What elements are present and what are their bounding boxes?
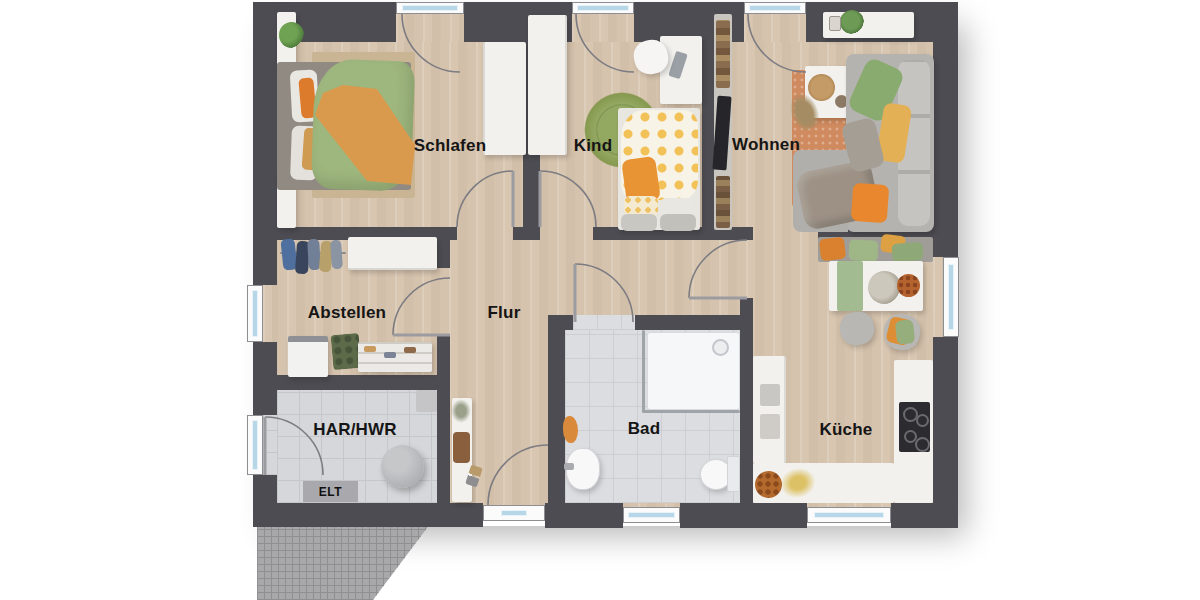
wall-bath-left	[548, 330, 565, 503]
boiler-tank	[381, 445, 424, 488]
chair-cloth-green	[895, 319, 915, 345]
bench-pillow-green-2	[891, 242, 923, 262]
jacket-slate	[330, 240, 343, 270]
window-symbol	[943, 257, 959, 337]
wall-bath-top-a	[548, 315, 573, 330]
sofa-pillow-orange	[851, 183, 890, 223]
plant-icon	[279, 22, 304, 48]
wall-storage-hall-b	[437, 335, 450, 503]
room-label-kind: Kind	[574, 136, 613, 156]
terrace-hatch	[257, 524, 430, 600]
elt-box: ELT	[303, 481, 358, 502]
wall-storage-utility	[277, 375, 450, 390]
terrace-door-symbol	[247, 415, 263, 475]
child-pillow-gray-2	[660, 214, 696, 231]
shelf-books-top	[716, 20, 730, 88]
shower-drain	[712, 339, 729, 356]
kitchen-cabinet-left	[753, 356, 786, 463]
burner-4	[915, 437, 930, 452]
window-symbol	[744, 2, 806, 14]
room-label-schlafen: Schlafen	[414, 136, 486, 156]
shower-glass-h	[642, 410, 740, 413]
wall-storage-hall-a	[437, 240, 450, 268]
dried-bouquet	[868, 271, 901, 304]
cabinet-niche-2	[760, 414, 780, 439]
window-recess-abstellen	[263, 285, 277, 342]
entry-door-symbol	[483, 505, 545, 521]
bench-pillow-green-1	[848, 239, 878, 261]
entry-bag	[453, 432, 470, 463]
table-runner	[837, 261, 863, 311]
plant-icon	[840, 10, 864, 34]
wardrobe-schlafen	[483, 42, 526, 155]
wall-right-2	[933, 337, 958, 505]
burner-2	[916, 414, 929, 427]
cabinet-niche-1	[760, 384, 780, 406]
elt-label: ELT	[319, 485, 342, 499]
wall-right-1	[933, 2, 958, 257]
wall-bath-top-b	[635, 315, 753, 330]
door-recess-har	[263, 415, 277, 475]
room-label-flur: Flur	[488, 303, 521, 323]
window-symbol	[623, 507, 680, 523]
window-symbol	[807, 507, 891, 523]
room-label-wohnen: Wohnen	[732, 135, 800, 155]
wall-left-2	[253, 342, 277, 415]
window-symbol	[396, 2, 464, 14]
window-recess-wohnen	[744, 12, 806, 42]
wall-child-living	[702, 42, 714, 227]
towel-orange	[563, 416, 578, 443]
wall-hall-top-b	[513, 227, 540, 240]
wall-left-1	[253, 2, 277, 285]
child-pillow-dotted	[624, 196, 658, 216]
window-symbol	[572, 2, 634, 14]
wall-bottom-2	[545, 503, 623, 528]
utility-corner-panel	[416, 390, 437, 412]
camo-bag	[331, 333, 362, 370]
room-label-abstellen: Abstellen	[308, 303, 386, 323]
room-label-kueche: Küche	[820, 420, 873, 440]
wall-kitchen-hall	[740, 298, 753, 503]
entry-deco-twigs	[451, 399, 471, 423]
washing-machine	[288, 336, 328, 377]
door-threshold-bad	[573, 315, 635, 330]
window-recess-kind	[572, 12, 634, 42]
shoes-pair-1	[364, 346, 376, 352]
shoes-pair-3	[404, 347, 416, 353]
picture-frame	[829, 16, 841, 31]
child-pillow-gray-1	[621, 214, 657, 231]
room-label-har-hwr: HAR/HWR	[313, 420, 397, 440]
shelf-books-bottom	[716, 176, 730, 228]
fruit-bowl-table	[897, 274, 920, 297]
shoes-pair-2	[384, 352, 396, 358]
toilet-tank	[727, 456, 740, 492]
window-recess-schlafen	[396, 12, 464, 42]
room-label-bad: Bad	[628, 419, 661, 439]
window-symbol	[247, 285, 263, 342]
wall-bottom-1	[253, 503, 483, 527]
floor-plan: ELT Schlafe	[0, 0, 1200, 600]
bench-pillow-orange-1	[819, 237, 846, 262]
storage-cabinet	[348, 237, 437, 270]
wardrobe-kind	[528, 15, 567, 155]
wall-bottom-3	[680, 503, 807, 528]
wall-bottom-4	[891, 503, 958, 528]
shower-glass-v	[642, 330, 645, 412]
sink-faucet	[564, 463, 574, 470]
